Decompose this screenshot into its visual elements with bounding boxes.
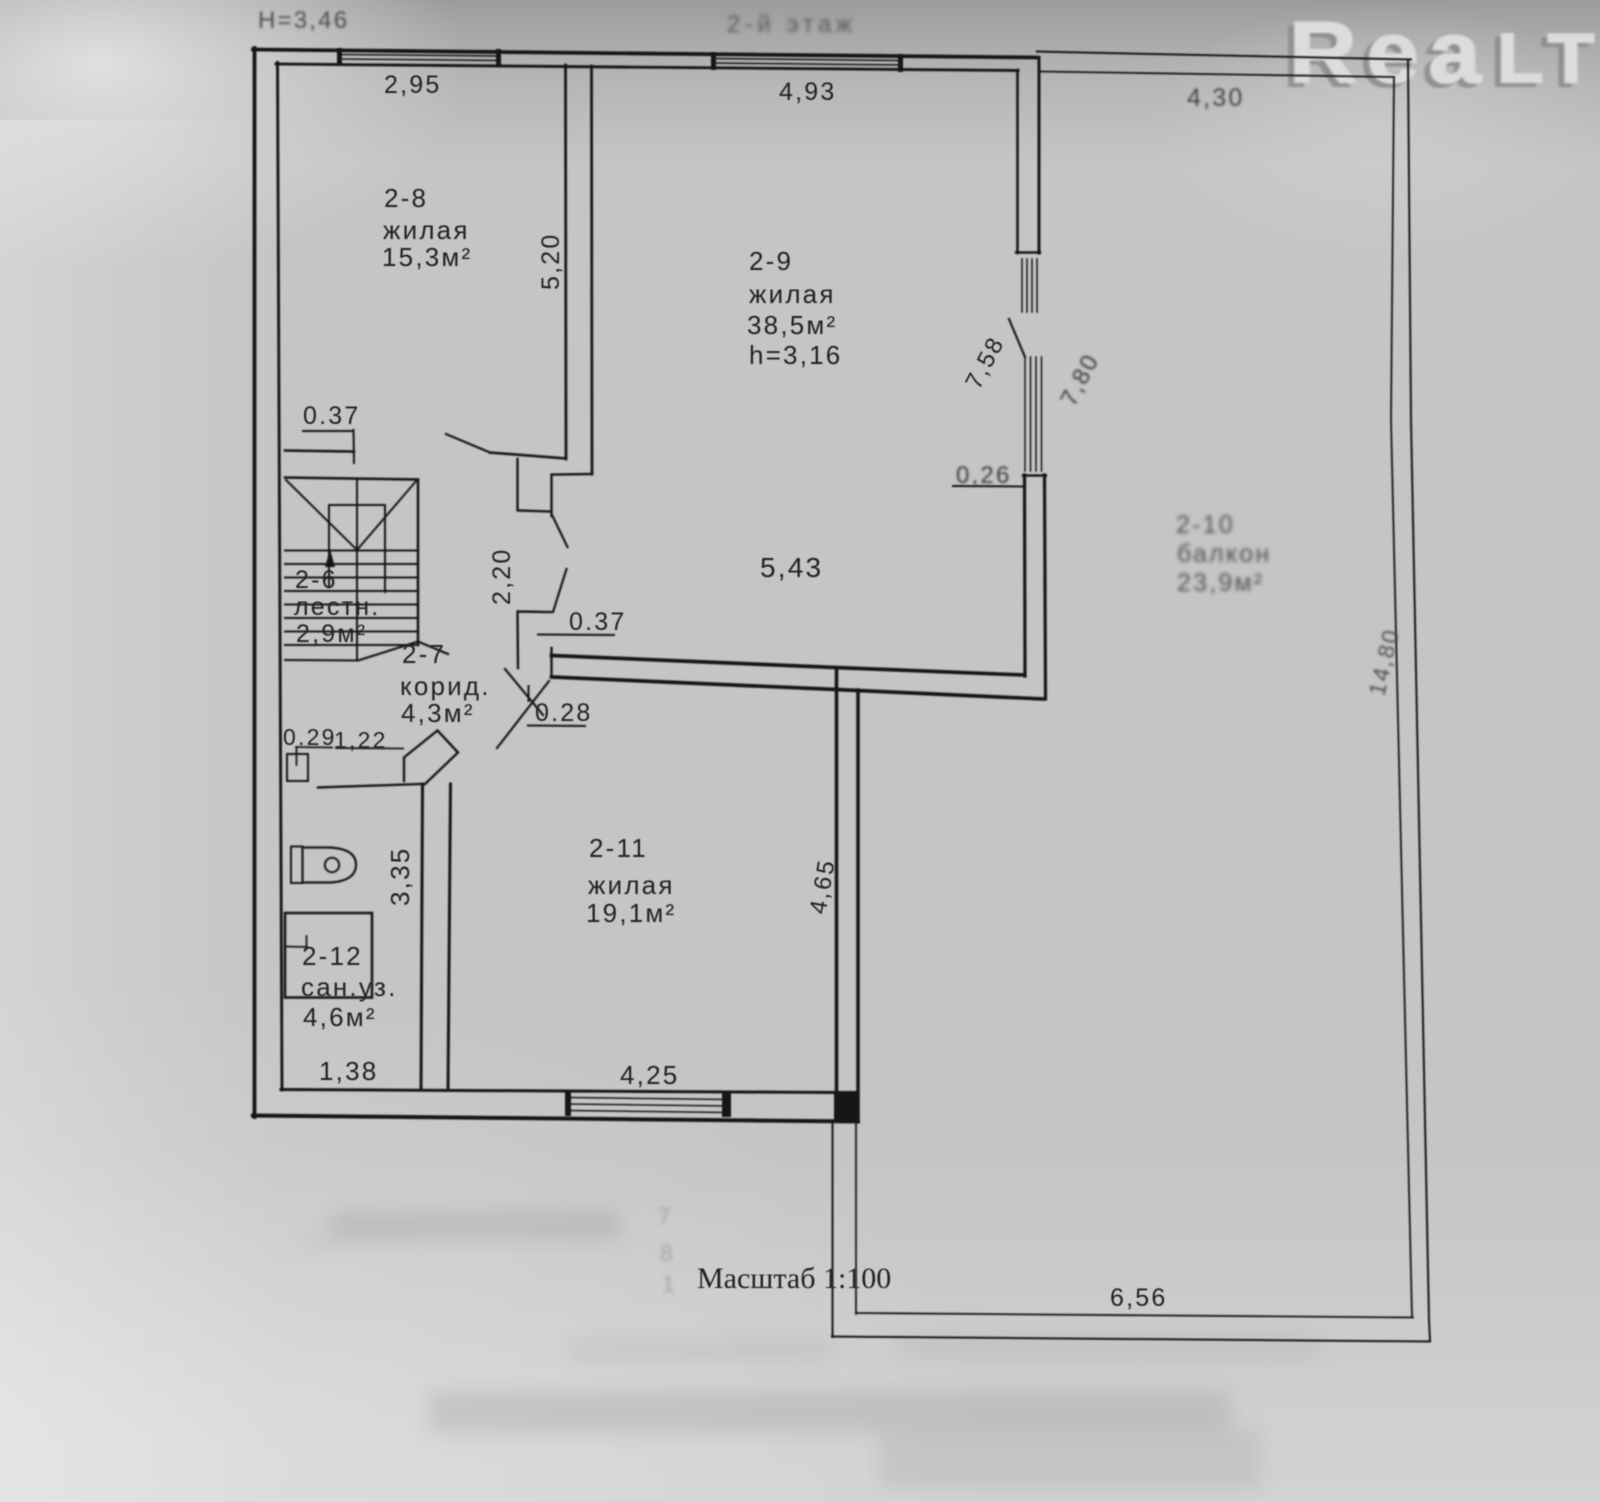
svg-text:23,9м²: 23,9м² — [1177, 569, 1264, 597]
svg-text:0.28: 0.28 — [535, 699, 592, 727]
svg-text:жилая: жилая — [588, 870, 675, 900]
svg-text:2-9: 2-9 — [749, 246, 793, 276]
svg-text:6,56: 6,56 — [1110, 1284, 1167, 1312]
svg-text:2,20: 2,20 — [488, 548, 516, 605]
svg-text:15,3м²: 15,3м² — [382, 242, 472, 272]
svg-text:2-11: 2-11 — [589, 833, 648, 863]
svg-text:4,3м²: 4,3м² — [401, 698, 475, 728]
svg-text:1: 1 — [662, 1271, 675, 1297]
svg-text:1,38: 1,38 — [319, 1056, 378, 1086]
svg-text:2-й этаж: 2-й этаж — [727, 11, 856, 38]
svg-text:лестн.: лестн. — [294, 593, 380, 621]
svg-text:0.37: 0.37 — [569, 608, 626, 636]
svg-text:жилая: жилая — [749, 279, 836, 309]
svg-text:4,6м²: 4,6м² — [303, 1002, 377, 1032]
svg-text:2-7: 2-7 — [402, 639, 446, 669]
svg-text:1,22: 1,22 — [334, 727, 388, 753]
svg-text:4,25: 4,25 — [620, 1060, 679, 1090]
svg-text:ReaLT: ReaLT — [1289, 6, 1600, 102]
svg-text:2-10: 2-10 — [1176, 511, 1235, 539]
svg-text:0.29: 0.29 — [283, 724, 337, 750]
svg-text:корид.: корид. — [400, 671, 491, 701]
svg-text:0.37: 0.37 — [303, 402, 360, 430]
svg-text:2,95: 2,95 — [384, 71, 441, 99]
svg-text:38,5м²: 38,5м² — [747, 310, 837, 340]
svg-text:0,26: 0,26 — [956, 462, 1012, 489]
svg-text:Масштаб 1:100: Масштаб 1:100 — [697, 1262, 891, 1295]
svg-text:h=3,16: h=3,16 — [749, 340, 842, 370]
svg-text:5,43: 5,43 — [760, 552, 823, 583]
svg-text:2-6: 2-6 — [295, 566, 338, 594]
svg-text:сан.уз.: сан.уз. — [301, 972, 398, 1002]
svg-text:2-8: 2-8 — [384, 183, 428, 213]
svg-text:8: 8 — [660, 1240, 673, 1266]
svg-text:2,9м²: 2,9м² — [296, 620, 367, 648]
svg-text:19,1м²: 19,1м² — [586, 898, 676, 928]
svg-text:балкон: балкон — [1177, 540, 1271, 568]
svg-text:2-12: 2-12 — [302, 941, 363, 971]
svg-text:3,35: 3,35 — [385, 847, 415, 906]
svg-text:H=3,46: H=3,46 — [258, 7, 349, 34]
svg-text:жилая: жилая — [383, 215, 470, 245]
svg-text:4,30: 4,30 — [1187, 84, 1244, 112]
svg-text:4,93: 4,93 — [779, 78, 836, 106]
svg-text:7: 7 — [658, 1203, 671, 1229]
svg-text:5,20: 5,20 — [537, 233, 565, 290]
